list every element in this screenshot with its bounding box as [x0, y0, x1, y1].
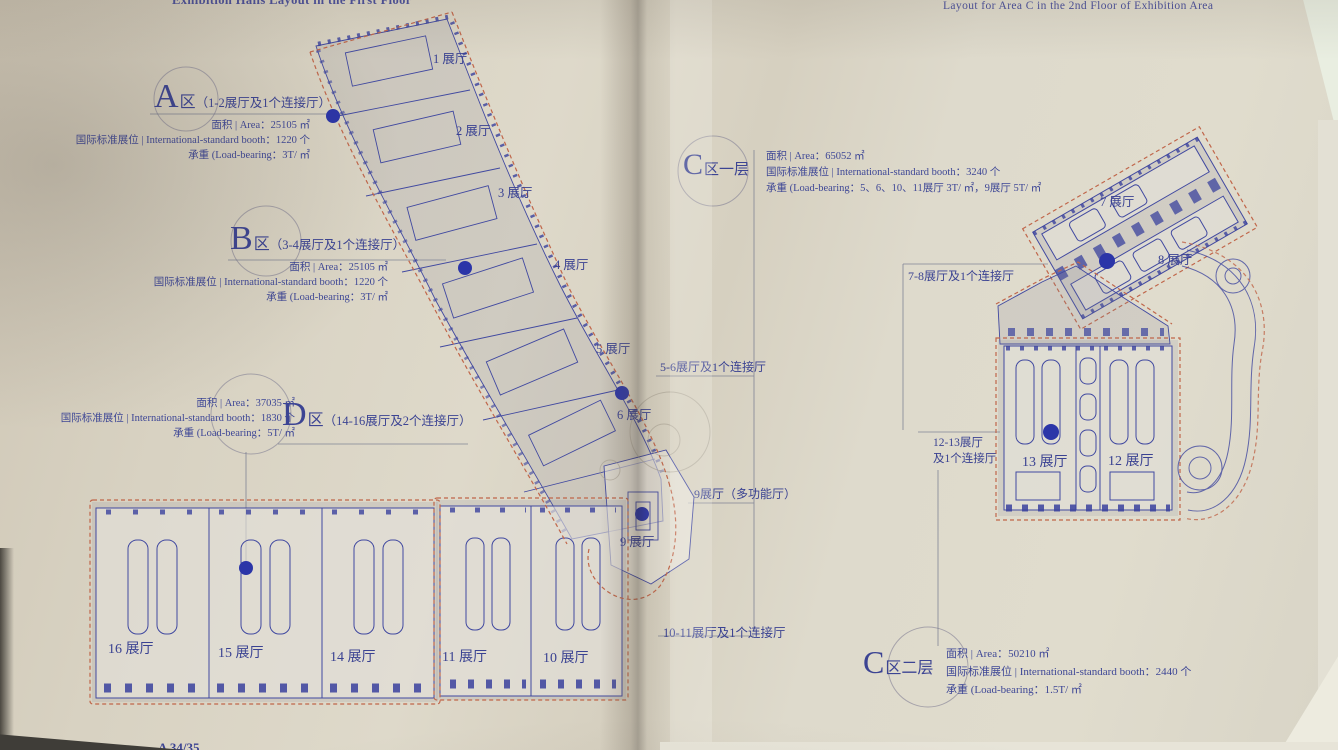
zone-b-letter: B [230, 220, 253, 257]
zone-c2-booths: 国际标准展位 | International-standard booth：24… [946, 663, 1336, 681]
zone-d-area: 面积 | Area：37035 ㎡ [30, 396, 295, 411]
zone-a-stats: 面积 | Area：25105 ㎡ 国际标准展位 | International… [15, 118, 310, 163]
callout-halls-5-6: 5-6展厅及1个连接厅 [660, 358, 766, 375]
callout-halls-7-8: 7-8展厅及1个连接厅 [908, 267, 1014, 284]
hall-3-label: 3 展厅 [498, 182, 532, 201]
zone-b-stats: 面积 | Area：25105 ㎡ 国际标准展位 | International… [62, 260, 388, 305]
zone-b-header: B区（3-4展厅及1个连接厅） [230, 222, 405, 256]
hall-1-label: 1 展厅 [433, 48, 467, 67]
block-halls-12-13 [996, 338, 1180, 520]
left-page-title: Exhibition Halls Layout in the First Flo… [172, 0, 412, 8]
ramp-curves [1178, 242, 1264, 520]
zone-d-suffix: 区 [308, 412, 324, 429]
page-edge-right [1318, 120, 1338, 750]
hall-6-label: 6 展厅 [617, 404, 651, 423]
zone-d-header: D区（14-16展厅及2个连接厅） [282, 398, 472, 432]
zone-c2-stats: 面积 | Area：50210 ㎡ 国际标准展位 | International… [946, 645, 1336, 699]
callout-halls-12-13: 12-13展厅 及1个连接厅 [933, 434, 996, 466]
right-page-title: Layout for Area C in the 2nd Floor of Ex… [943, 0, 1213, 12]
hall-11-label: 11 展厅 [442, 646, 487, 666]
zone-d-paren: （14-16展厅及2个连接厅） [324, 414, 472, 428]
block-halls-14-16 [92, 502, 438, 702]
zone-c2-area: 面积 | Area：50210 ㎡ [946, 645, 1336, 663]
hall-7-label: 7 展厅 [1100, 191, 1134, 210]
zone-c1-area: 面积 | Area：65052 ㎡ [766, 149, 1226, 165]
zone-b-area: 面积 | Area：25105 ㎡ [62, 260, 388, 275]
zone-a-load: 承重 (Load-bearing：3T/ ㎡ [15, 148, 310, 163]
hall-15-label: 15 展厅 [218, 642, 264, 662]
hall-9-label: 9 展厅 [620, 531, 654, 550]
zone-c2-load: 承重 (Load-bearing：1.5T/ ㎡ [946, 681, 1336, 699]
block-halls-10-11 [436, 500, 626, 700]
zone-d-stats: 面积 | Area：37035 ㎡ 国际标准展位 | International… [30, 396, 295, 441]
zone-c2-suffix: 区二层 [885, 660, 933, 677]
callout-hall-9-multi: 9展厅（多功能厅） [694, 485, 796, 502]
zone-b-paren: （3-4展厅及1个连接厅） [270, 238, 405, 252]
callout-halls-10-11: 10-11展厅及1个连接厅 [663, 622, 785, 641]
zone-c1-stats: 面积 | Area：65052 ㎡ 国际标准展位 | International… [766, 149, 1226, 197]
callout-halls-12-13-line2: 及1个连接厅 [933, 450, 996, 466]
zone-c2-letter: C [863, 644, 884, 680]
zone-c1-load: 承重 (Load-bearing：5、6、10、11展厅 3T/ ㎡，9展厅 5… [766, 181, 1226, 197]
hall-2-label: 2 展厅 [456, 120, 490, 139]
zone-a-area: 面积 | Area：25105 ㎡ [15, 118, 310, 133]
book-photo: Exhibition Halls Layout in the First Flo… [0, 0, 1338, 750]
zone-b-suffix: 区 [254, 236, 270, 253]
hall-12-label: 12 展厅 [1108, 450, 1154, 470]
hall-4-label: 4 展厅 [554, 254, 588, 273]
zone-d-load: 承重 (Load-bearing：5T/ ㎡ [30, 426, 295, 441]
zone-b-booths: 国际标准展位 | International-standard booth：12… [62, 275, 388, 290]
zone-d-booths: 国际标准展位 | International-standard booth：18… [30, 411, 295, 426]
zone-c2-header: C区二层 [863, 646, 933, 678]
zone-a-booths: 国际标准展位 | International-standard booth：12… [15, 133, 310, 148]
hall-13-label: 13 展厅 [1022, 451, 1068, 471]
zone-c1-letter: C [683, 148, 703, 181]
zone-b-load: 承重 (Load-bearing：3T/ ㎡ [62, 290, 388, 305]
hall-5-label: 5 展厅 [596, 338, 630, 357]
zone-a-letter: A [154, 78, 179, 115]
page-edge-bottom [660, 742, 1338, 750]
zone-a-suffix: 区 [180, 94, 196, 111]
zone-c1-suffix: 区一层 [704, 162, 749, 178]
zone-c1-header: C区一层 [683, 150, 749, 180]
zone-c1-booths: 国际标准展位 | International-standard booth：32… [766, 165, 1226, 181]
hall-14-label: 14 展厅 [330, 646, 376, 666]
hall-16-label: 16 展厅 [108, 638, 154, 658]
zone-a-header: A区（1-2展厅及1个连接厅） [154, 80, 331, 114]
hall-10-label: 10 展厅 [543, 647, 589, 667]
callout-halls-12-13-line1: 12-13展厅 [933, 434, 996, 450]
zone-a-paren: （1-2展厅及1个连接厅） [196, 96, 331, 110]
hall-8-label: 8 展厅 [1158, 249, 1192, 268]
photo-edge-left [0, 548, 14, 750]
